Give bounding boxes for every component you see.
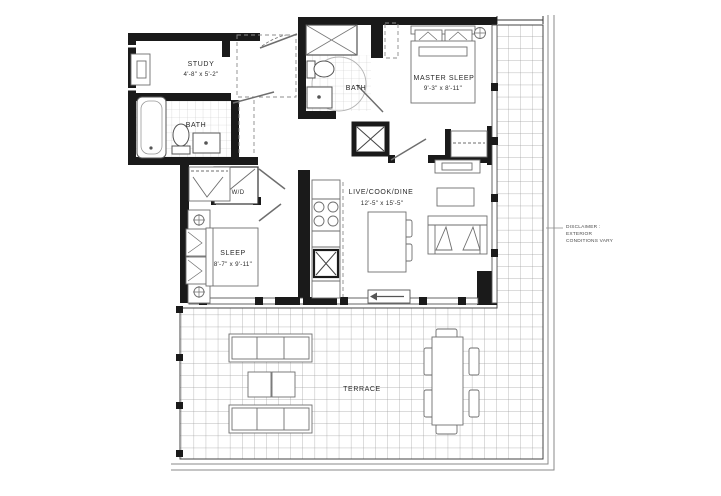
sleep-label: SLEEP [220,250,246,257]
master-door [391,139,426,160]
master-dims: 9'-3" x 8'-11" [424,85,462,92]
master-closet [451,131,487,157]
bath-floors [136,55,371,157]
dining-chair [469,390,479,417]
study-dims: 4'-8" x 5'-2" [183,71,218,78]
floor-plan-drawing: STUDY 4'-8" x 5'-2" BATH BATH MASTER SLE… [0,0,721,496]
outdoor-sofa [229,334,312,362]
disclaimer-line2: EXTERIOR [566,231,592,237]
entry-door [260,34,297,48]
bath1-label: BATH [186,122,207,129]
outdoor-sofa [229,405,312,433]
living-dims: 12'-5" x 15'-5" [361,200,404,207]
dining-chair [469,348,479,375]
master-label: MASTER SLEEP [414,75,475,82]
dining-table [432,337,463,425]
desk-chair [137,61,146,78]
disclaimer-line3: CONDITIONS VARY [566,238,614,244]
bath1-door [233,92,274,103]
disclaimer-note: DISCLAIMER : EXTERIOR CONDITIONS VARY [546,224,614,244]
shower [306,25,357,55]
coffee-table [437,188,474,206]
sleep-closet [189,167,230,201]
terrace-door [368,290,410,303]
terrace-label: TERRACE [343,386,381,393]
tv-console [435,160,480,173]
kitchen-counter [312,180,340,298]
dimension-line [497,16,543,24]
sleep-door [259,204,281,221]
foyer-dashed-area [237,35,296,97]
living-label: LIVE/COOK/DINE [349,189,414,196]
floor-plan: STUDY 4'-8" x 5'-2" BATH BATH MASTER SLE… [0,0,721,496]
shaft-box [354,124,387,154]
ceiling-light-icon [475,28,486,39]
right-window-wall [492,25,497,303]
kitchen-sink [314,250,338,277]
laundry-label: W/D [232,190,245,196]
master-entry-closet [385,23,398,58]
living-furniture [428,160,487,254]
dining-chair [436,424,457,434]
bed [186,228,258,286]
bath2-label: BATH [346,85,367,92]
toilet [314,61,334,77]
study-furniture [131,54,150,85]
laundry-door [259,169,285,189]
disclaimer-line1: DISCLAIMER : [566,224,600,230]
study-label: STUDY [188,61,215,68]
outdoor-table [272,372,295,397]
kitchen [312,180,412,298]
kitchen-island [368,212,406,272]
sleep-dims: 8'-7" x 9'-11" [214,261,252,268]
sofa [428,216,487,254]
outdoor-table [248,372,271,397]
